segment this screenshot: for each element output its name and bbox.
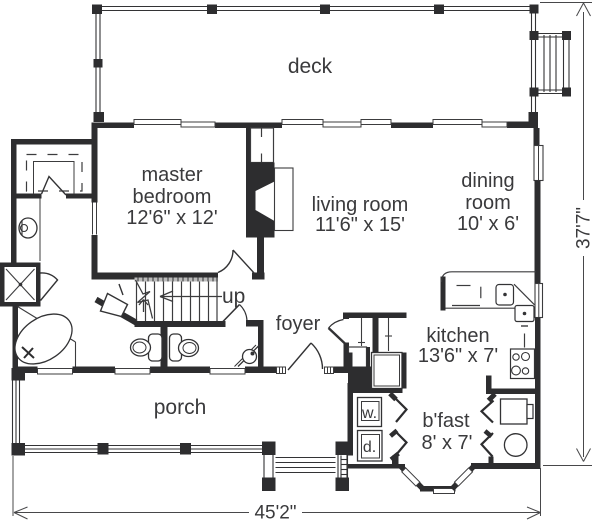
svg-text:deck: deck (288, 55, 333, 78)
svg-text:living room: living room (312, 194, 409, 216)
svg-text:porch: porch (154, 396, 207, 419)
svg-text:11'6" x 15': 11'6" x 15' (315, 214, 405, 236)
svg-text:bedroom: bedroom (133, 186, 212, 208)
svg-text:dining: dining (461, 170, 514, 192)
svg-text:kitchen: kitchen (426, 325, 489, 347)
svg-text:d.: d. (363, 439, 376, 456)
svg-text:8' x 7': 8' x 7' (422, 432, 473, 454)
svg-text:37'7": 37'7" (574, 207, 595, 249)
svg-text:w.: w. (361, 405, 377, 422)
svg-text:master: master (141, 164, 202, 186)
svg-text:10' x 6': 10' x 6' (457, 213, 519, 235)
svg-text:up: up (222, 285, 245, 308)
svg-text:room: room (465, 192, 511, 214)
svg-text:12'6" x 12': 12'6" x 12' (126, 207, 217, 229)
svg-text:13'6" x 7': 13'6" x 7' (418, 345, 498, 367)
svg-text:foyer: foyer (276, 313, 321, 335)
svg-text:45'2": 45'2" (254, 503, 296, 524)
svg-text:b'fast: b'fast (422, 410, 470, 432)
